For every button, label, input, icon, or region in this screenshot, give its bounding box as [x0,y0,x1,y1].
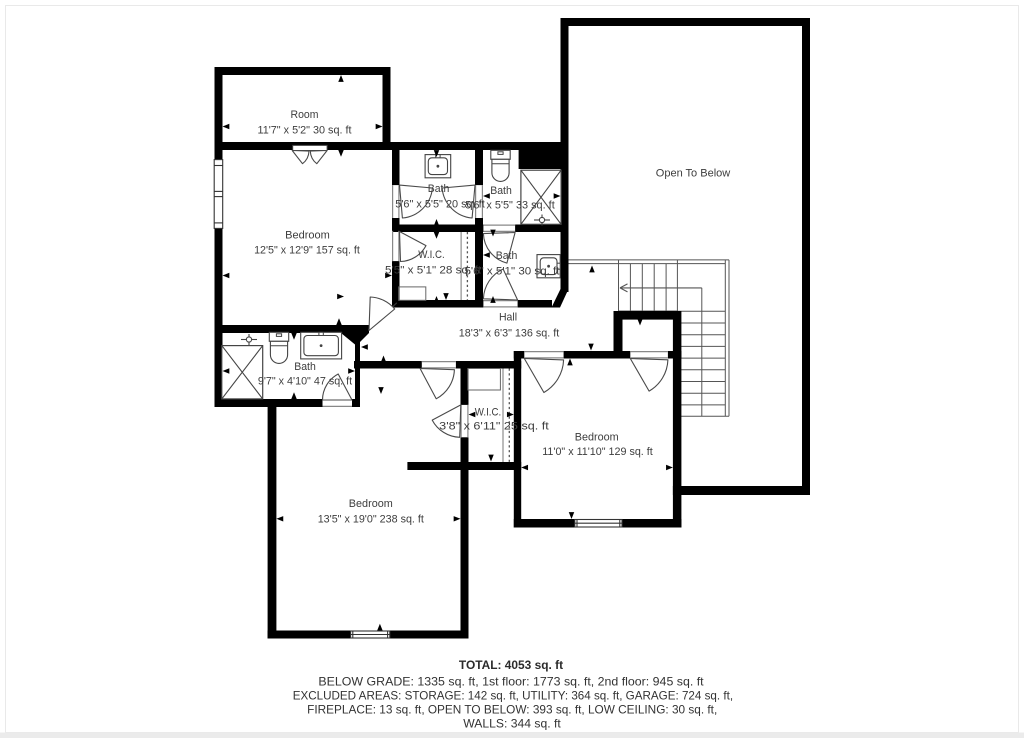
svg-text:Room: Room [291,109,319,121]
svg-text:BELOW GRADE: 1335 sq. ft, 1st: BELOW GRADE: 1335 sq. ft, 1st floor: 177… [318,675,704,689]
svg-text:Open To Below: Open To Below [656,168,731,180]
svg-text:Bath: Bath [490,185,512,197]
svg-text:W.I.C.: W.I.C. [475,406,501,418]
svg-text:EXCLUDED AREAS: STORAGE: 142 s: EXCLUDED AREAS: STORAGE: 142 sq. ft, UTI… [293,688,733,702]
svg-text:Bath: Bath [294,361,316,373]
svg-text:11'0" x 11'10" 129 sq. ft: 11'0" x 11'10" 129 sq. ft [542,446,653,458]
svg-text:9'7" x 4'10" 47 sq. ft: 9'7" x 4'10" 47 sq. ft [258,376,353,388]
svg-text:12'5" x 12'9" 157 sq. ft: 12'5" x 12'9" 157 sq. ft [254,244,361,256]
svg-text:3'8" x 6'11" 25 sq. ft: 3'8" x 6'11" 25 sq. ft [439,421,550,433]
svg-text:Bath: Bath [428,183,450,195]
svg-text:Bedroom: Bedroom [285,229,330,241]
svg-text:WALLS: 344 sq. ft: WALLS: 344 sq. ft [463,716,561,730]
svg-text:Bedroom: Bedroom [575,431,619,443]
svg-text:W.I.C.: W.I.C. [418,249,444,261]
svg-text:Hall: Hall [499,312,517,324]
svg-text:Bath: Bath [496,250,518,262]
svg-text:FIREPLACE: 13 sq. ft, OPEN TO: FIREPLACE: 13 sq. ft, OPEN TO BELOW: 393… [307,702,717,716]
svg-text:Bedroom: Bedroom [349,498,393,510]
svg-text:18'3" x 6'3" 136 sq. ft: 18'3" x 6'3" 136 sq. ft [459,327,560,339]
svg-text:5'6" x 5'5" 33 sq. ft: 5'6" x 5'5" 33 sq. ft [465,200,555,212]
svg-text:5'6" x 5'1" 30 sq. ft: 5'6" x 5'1" 30 sq. ft [465,266,561,278]
svg-text:11'7" x 5'2" 30 sq. ft: 11'7" x 5'2" 30 sq. ft [258,125,353,137]
svg-text:13'5" x 19'0" 238 sq. ft: 13'5" x 19'0" 238 sq. ft [318,514,425,526]
svg-text:TOTAL: 4053 sq. ft: TOTAL: 4053 sq. ft [459,658,563,672]
